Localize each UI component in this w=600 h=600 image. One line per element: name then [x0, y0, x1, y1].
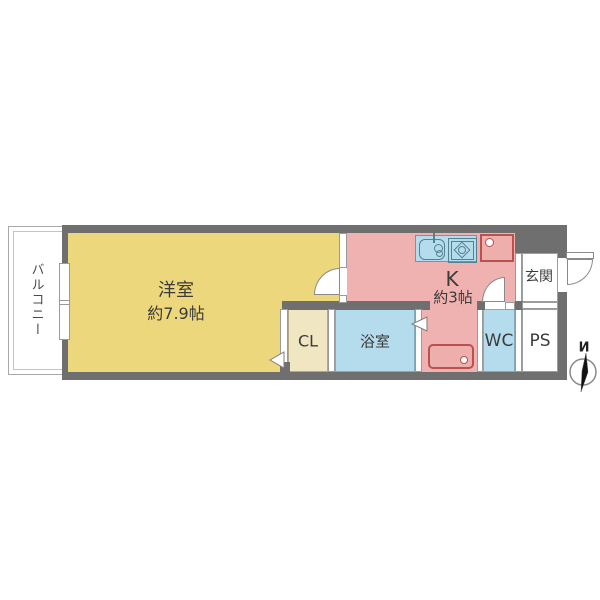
wall-wc-top-right — [505, 302, 515, 310]
wall-kitchen-entrance — [515, 253, 522, 302]
label-wc: WC — [485, 331, 514, 351]
window — [59, 263, 70, 340]
floorplan: バルコニー 洋室 約7.9帖 K 約3帖 CL 浴室 WC PS 玄関 N — [0, 0, 600, 600]
label-ps: PS — [529, 331, 550, 351]
closet-door-marker-icon — [268, 350, 286, 370]
label-western-size: 約7.9帖 — [147, 300, 204, 324]
label-entrance: 玄関 — [525, 266, 553, 286]
wall-western-kitchen-upper — [339, 233, 347, 268]
room-western-upper — [68, 233, 340, 303]
wall-closet-bath — [328, 309, 335, 372]
doorway-wc — [485, 302, 505, 309]
doorway-western — [339, 268, 347, 295]
kitchen-counter — [415, 235, 477, 262]
refrigerator-space — [480, 234, 514, 262]
wall-wc-ps — [515, 309, 522, 372]
wall-stub-wc-left — [477, 301, 485, 310]
wall-western-bath — [282, 301, 430, 310]
kitchen-stove-icon — [448, 238, 477, 263]
label-closet: CL — [298, 332, 318, 351]
wall-western-kitchen-lower — [339, 295, 347, 303]
label-balcony: バルコニー — [27, 263, 46, 338]
label-bath: 浴室 — [360, 331, 390, 352]
refrigerator-mark-icon — [485, 238, 494, 247]
washing-machine-pan — [428, 344, 474, 369]
wall-corridor-wc — [477, 309, 483, 372]
compass-icon — [566, 345, 600, 395]
drain-mark-icon — [460, 356, 468, 364]
bath-door-marker-icon — [410, 315, 429, 333]
entrance-door-arc-icon — [567, 259, 593, 285]
label-western: 洋室 — [158, 276, 194, 302]
label-kitchen-size: 約3帖 — [433, 287, 473, 308]
entrance-door-leaf — [566, 252, 594, 259]
wall-entrance-ps — [522, 302, 558, 309]
kitchen-sink-icon — [419, 239, 445, 260]
